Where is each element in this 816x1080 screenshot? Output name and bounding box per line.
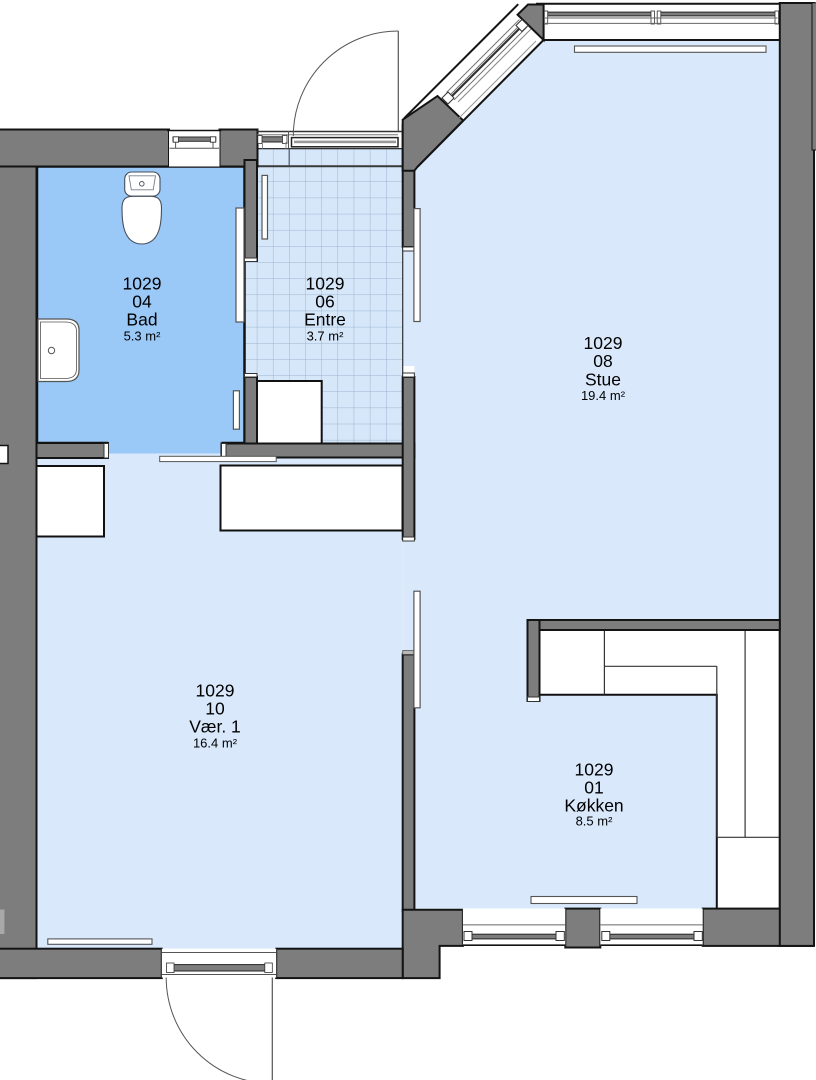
svg-text:Vær. 1: Vær. 1 [189, 717, 241, 737]
svg-text:3.7 m²: 3.7 m² [307, 329, 345, 344]
svg-text:Bad: Bad [126, 310, 157, 330]
svg-text:Køkken: Køkken [564, 796, 623, 816]
svg-text:Stue: Stue [585, 370, 621, 390]
svg-text:19.4 m²: 19.4 m² [581, 388, 626, 403]
svg-text:1029: 1029 [196, 681, 235, 701]
svg-text:Entre: Entre [304, 310, 346, 330]
svg-text:16.4 m²: 16.4 m² [193, 736, 238, 751]
svg-text:1029: 1029 [584, 333, 623, 353]
svg-text:1029: 1029 [123, 274, 162, 294]
svg-text:01: 01 [584, 778, 603, 798]
svg-text:5.3 m²: 5.3 m² [124, 329, 162, 344]
svg-text:08: 08 [593, 351, 612, 371]
svg-text:1029: 1029 [306, 274, 345, 294]
svg-text:06: 06 [315, 292, 334, 312]
svg-text:8.5 m²: 8.5 m² [576, 814, 614, 829]
svg-text:04: 04 [132, 292, 152, 312]
svg-text:10: 10 [205, 699, 225, 719]
svg-text:1029: 1029 [575, 760, 614, 780]
